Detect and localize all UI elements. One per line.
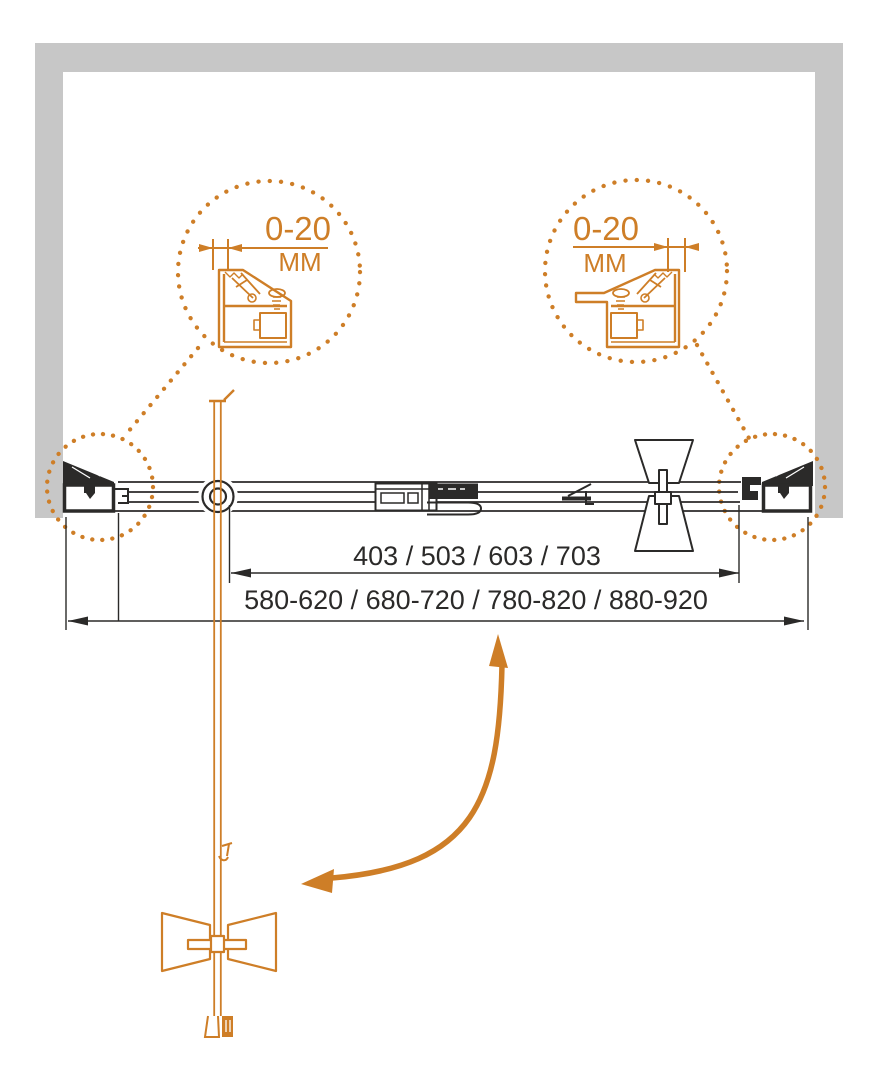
dimension-label-overall-width: 580-620 / 680-720 / 780-820 / 880-920 (234, 586, 718, 614)
adjustment-value-left: 0-20 (248, 212, 348, 245)
door-swing-arrow (301, 634, 508, 893)
adjustment-unit-right: ММ (555, 250, 655, 276)
wall-profile-right (742, 461, 813, 511)
callout-leader-right (697, 345, 750, 440)
diagram-linework (0, 0, 877, 1080)
wall-profile-left (63, 461, 128, 511)
installation-diagram: 0-20 ММ 0-20 ММ 403 / 503 / 603 / 703 58… (0, 0, 877, 1080)
door-knob-closed (635, 440, 693, 551)
door-knob-open (162, 913, 276, 971)
adjustment-unit-left: ММ (250, 249, 350, 275)
callout-leader-left (128, 348, 198, 432)
profile-cross-section-right (576, 270, 679, 347)
door-top-pivot-cap (209, 390, 234, 401)
door-bottom-end-cap (205, 1016, 233, 1037)
center-wall-bracket (375, 484, 481, 515)
profile-cross-section-left (219, 270, 291, 347)
dimension-label-glass-width: 403 / 503 / 603 / 703 (329, 542, 625, 570)
pivot-hinge (198, 477, 238, 517)
adjustment-value-right: 0-20 (556, 212, 656, 245)
